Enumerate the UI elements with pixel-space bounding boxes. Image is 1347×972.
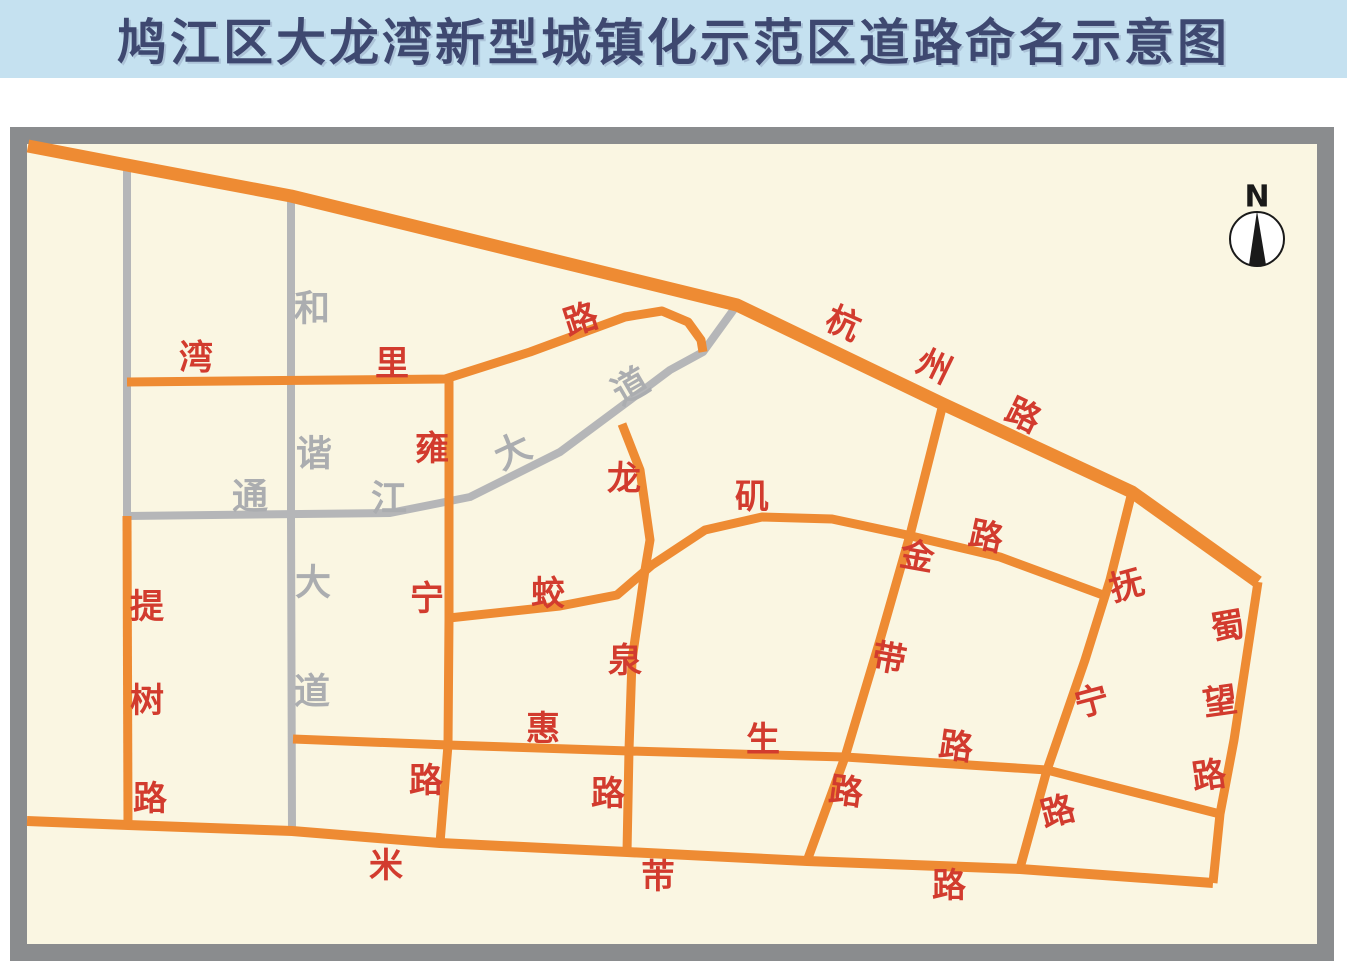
road-label-mifu-lu-32: 路 [932,866,967,906]
road-label-jindai-lu-16: 带 [869,636,909,681]
road-label-huisheng-lu-28: 生 [746,720,780,760]
road-label-longquan-lu-7: 泉 [608,641,642,681]
road-label-longquan-lu-8: 路 [591,774,626,814]
road-label-yongning-lu-4: 宁 [410,579,444,619]
road-label-jiaoji-lu-10: 矶 [735,477,769,517]
road-label-hexie-dadao-33: 和 [294,289,330,330]
road-label-huisheng-lu-27: 惠 [526,709,560,749]
page-title: 鸠江区大龙湾新型城镇化示范区道路命名示意图 [117,3,1230,75]
road-label-wanli-lu-0: 湾 [179,338,213,378]
road-map-canvas: 湾里路雍宁路龙泉路蛟矶路杭州路金带路抚宁路蜀望路提树路惠生路米芾路和谐大道通江大… [0,0,1347,972]
road-label-jiaoji-lu-9: 蛟 [531,574,565,614]
road-label-mifu-lu-31: 芾 [641,857,675,897]
road-label-tishu-lu-24: 提 [130,587,164,627]
road-tishu-lu [127,516,128,825]
road-label-longquan-lu-6: 龙 [607,459,641,499]
road-hexie-dadao [291,195,292,830]
compass-north-label: N [1244,180,1269,215]
road-label-yongning-lu-3: 雍 [415,429,449,469]
road-label-tongjiang-dadao-37: 通 [232,477,268,518]
road-label-wanli-lu-1: 里 [375,344,409,384]
screenshot-stage: 湾里路雍宁路龙泉路蛟矶路杭州路金带路抚宁路蜀望路提树路惠生路米芾路和谐大道通江大… [0,0,1347,972]
road-label-shuwang-lu-21: 蜀 [1208,604,1248,649]
title-band: 鸠江区大龙湾新型城镇化示范区道路命名示意图 [0,0,1347,78]
road-label-hexie-dadao-35: 大 [295,563,331,604]
road-label-tongjiang-dadao-38: 江 [371,479,407,520]
road-label-yongning-lu-5: 路 [409,761,444,801]
road-label-tishu-lu-26: 路 [133,779,168,819]
road-label-hexie-dadao-36: 道 [294,672,330,713]
road-label-shuwang-lu-23: 路 [1189,754,1229,798]
road-label-hexie-dadao-34: 谐 [296,434,332,475]
road-label-jindai-lu-17: 路 [826,770,866,814]
road-label-tishu-lu-25: 树 [130,681,164,721]
road-label-shuwang-lu-22: 望 [1200,680,1239,724]
road-label-mifu-lu-30: 米 [369,846,403,886]
road-label-huisheng-lu-29: 路 [936,725,976,769]
